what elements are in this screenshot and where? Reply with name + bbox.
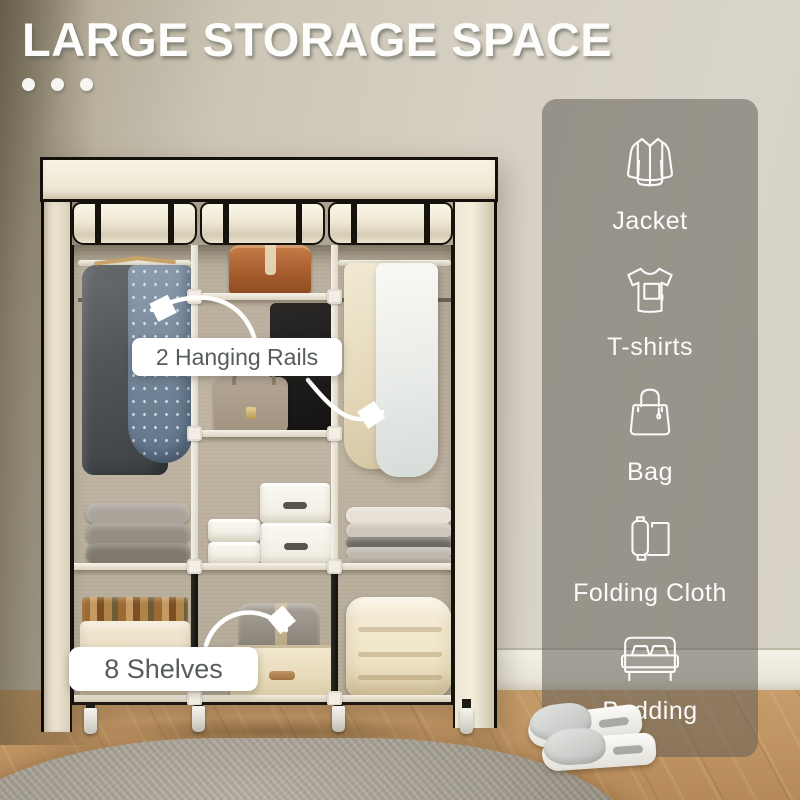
shelf [198,430,331,437]
frame-connector [187,289,202,304]
legend-item-jacket: Jacket [612,130,687,236]
slippers [512,698,682,784]
white-storage-box-flat [208,519,260,542]
frame-connector [327,289,342,304]
page-title: LARGE STORAGE SPACE [22,12,612,67]
wardrobe-foot [192,706,205,732]
handbag [214,377,288,434]
wardrobe-foot [460,708,473,734]
wardrobe-foot [332,706,345,732]
frame-connector [327,426,342,441]
bag-icon [616,383,684,449]
legend-label: Folding Cloth [573,579,727,608]
leather-hat-box [229,245,311,295]
wardrobe-side-panel-left [41,202,72,732]
folded-towel [346,507,452,524]
rolled-door-left [72,202,197,245]
rolled-up-door [72,202,453,245]
legend-label: Bag [627,458,673,487]
frame-connector [327,559,342,574]
wardrobe-foot [84,708,97,734]
wardrobe-side-panel-right [453,202,497,728]
bedding-icon [606,630,694,688]
frame-connector [187,426,202,441]
white-storage-box-flat [208,542,260,565]
feature-legend-panel: Jacket T-shirts Bag [542,99,758,757]
legend-label: Jacket [612,207,687,236]
legend-item-folding-cloth: Folding Cloth [573,508,727,608]
folding-cloth-icon [614,508,686,570]
white-storage-box [260,523,332,565]
title-dot [51,78,64,91]
title-dot [80,78,93,91]
legend-item-tshirts: T-shirts [607,258,693,362]
shelf [74,563,453,570]
title-dots [22,78,93,91]
hanging-shirt [376,263,438,477]
frame-connector [187,691,202,705]
rolled-door-middle [200,202,325,245]
frame-connector [327,691,342,705]
fabric-hat-box [238,603,320,651]
title-dot [22,78,35,91]
folded-towel [346,523,452,538]
frame-connector [187,559,202,574]
jacket-icon [615,130,685,198]
tshirt-icon [614,258,686,324]
folded-sweater [86,503,190,524]
legend-item-bag: Bag [616,383,684,487]
folded-duvet [346,597,452,698]
folded-sweater [86,543,190,564]
folded-sweater [86,523,190,544]
rolled-door-right [328,202,453,245]
bottom-rail [74,695,453,702]
frame-pole-lower [331,563,338,702]
legend-label: T-shirts [607,333,693,362]
wardrobe-top-cover [40,157,498,202]
scene: LARGE STORAGE SPACE 2 Hanging Rails 8 Sh… [0,0,800,800]
callout-shelves: 8 Shelves [69,647,258,691]
slipper [541,732,657,772]
white-storage-box [260,483,330,523]
shelf [198,293,331,300]
callout-hanging-rails: 2 Hanging Rails [132,338,342,376]
wardrobe-interior [72,245,453,705]
